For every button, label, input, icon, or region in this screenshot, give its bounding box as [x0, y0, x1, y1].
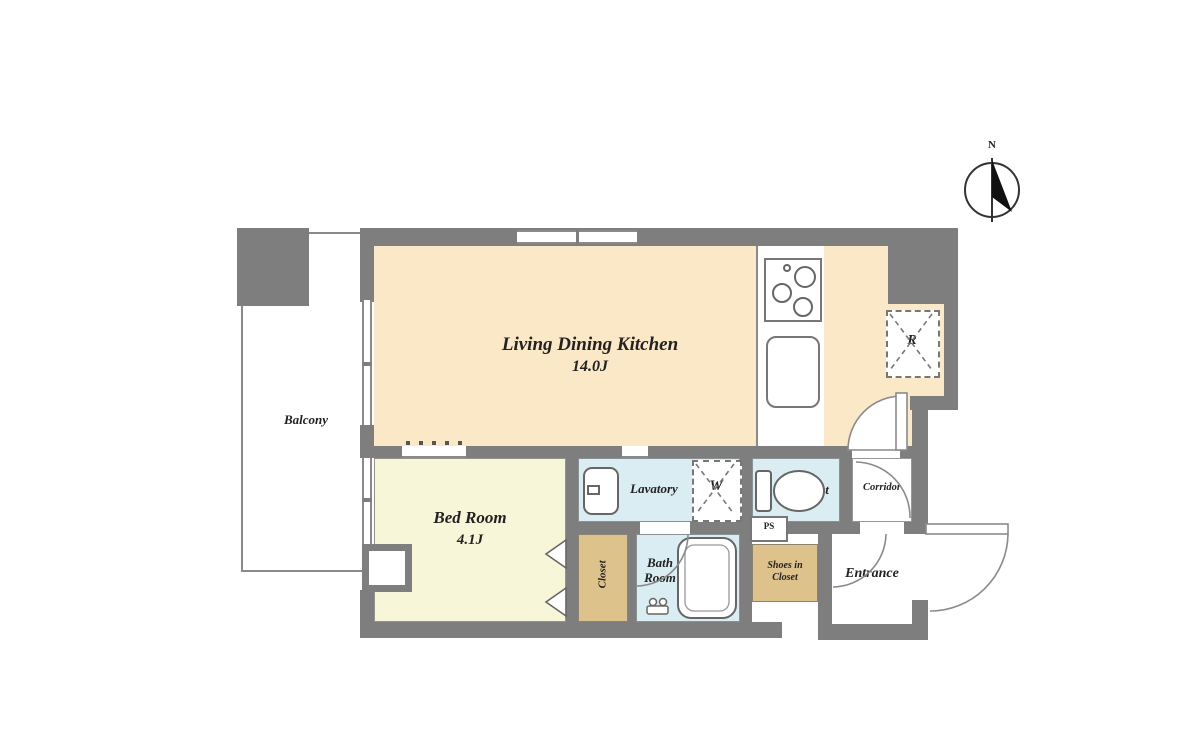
closet-room — [578, 534, 628, 622]
wall-left-top — [360, 228, 374, 302]
wall-right-upper — [944, 296, 958, 410]
corridor-room — [852, 458, 912, 522]
wall-step-right — [910, 396, 958, 410]
floor-plan: Balcony Living Dining Kitchen 14.0J Bed … — [0, 0, 1192, 741]
washing-machine-space — [692, 460, 742, 522]
wall-block-top-right — [888, 228, 958, 304]
wall-bottom-main — [360, 622, 782, 638]
wall-lower-band-c — [904, 522, 912, 534]
wall-ldk-bedroom-b — [466, 446, 622, 458]
refrigerator-space — [886, 310, 940, 378]
wall-lower-band-a — [566, 522, 640, 534]
wall-closet-bath — [628, 534, 636, 622]
sliding-door-bedroom — [402, 446, 466, 458]
window-top-divider — [576, 230, 579, 244]
bedroom-room — [374, 458, 566, 622]
wall-bedroom-closet — [566, 446, 578, 622]
pipe-space-box — [750, 516, 788, 542]
compass-icon — [965, 158, 1019, 222]
toilet-room — [752, 458, 840, 522]
wall-ldk-bedroom-a — [374, 446, 402, 458]
wall-block-top-left — [237, 228, 309, 306]
compass-north-label: N — [980, 139, 1004, 152]
lavatory-door-opening — [622, 446, 648, 458]
shoes-in-closet-room — [752, 544, 818, 602]
ldk-room-ext-lower — [888, 396, 912, 446]
wall-toilet-corridor — [840, 446, 852, 522]
wall-entrance-left — [818, 530, 832, 640]
front-door-opening — [912, 534, 928, 600]
stove-icon — [764, 258, 822, 322]
entrance-room — [832, 530, 912, 624]
bedroom-bay-window — [362, 544, 412, 592]
wall-left-mid — [360, 425, 374, 458]
window-left-bedroom-tick — [362, 498, 372, 502]
bath-room — [636, 534, 740, 622]
kitchen-sink-icon — [766, 336, 820, 408]
wall-corridor-stub — [900, 446, 912, 458]
wall-entrance-bottom — [818, 624, 928, 640]
front-door-swing-icon — [926, 524, 1008, 611]
window-left-ldk-tick — [362, 362, 372, 366]
wall-right-lower — [912, 410, 928, 640]
